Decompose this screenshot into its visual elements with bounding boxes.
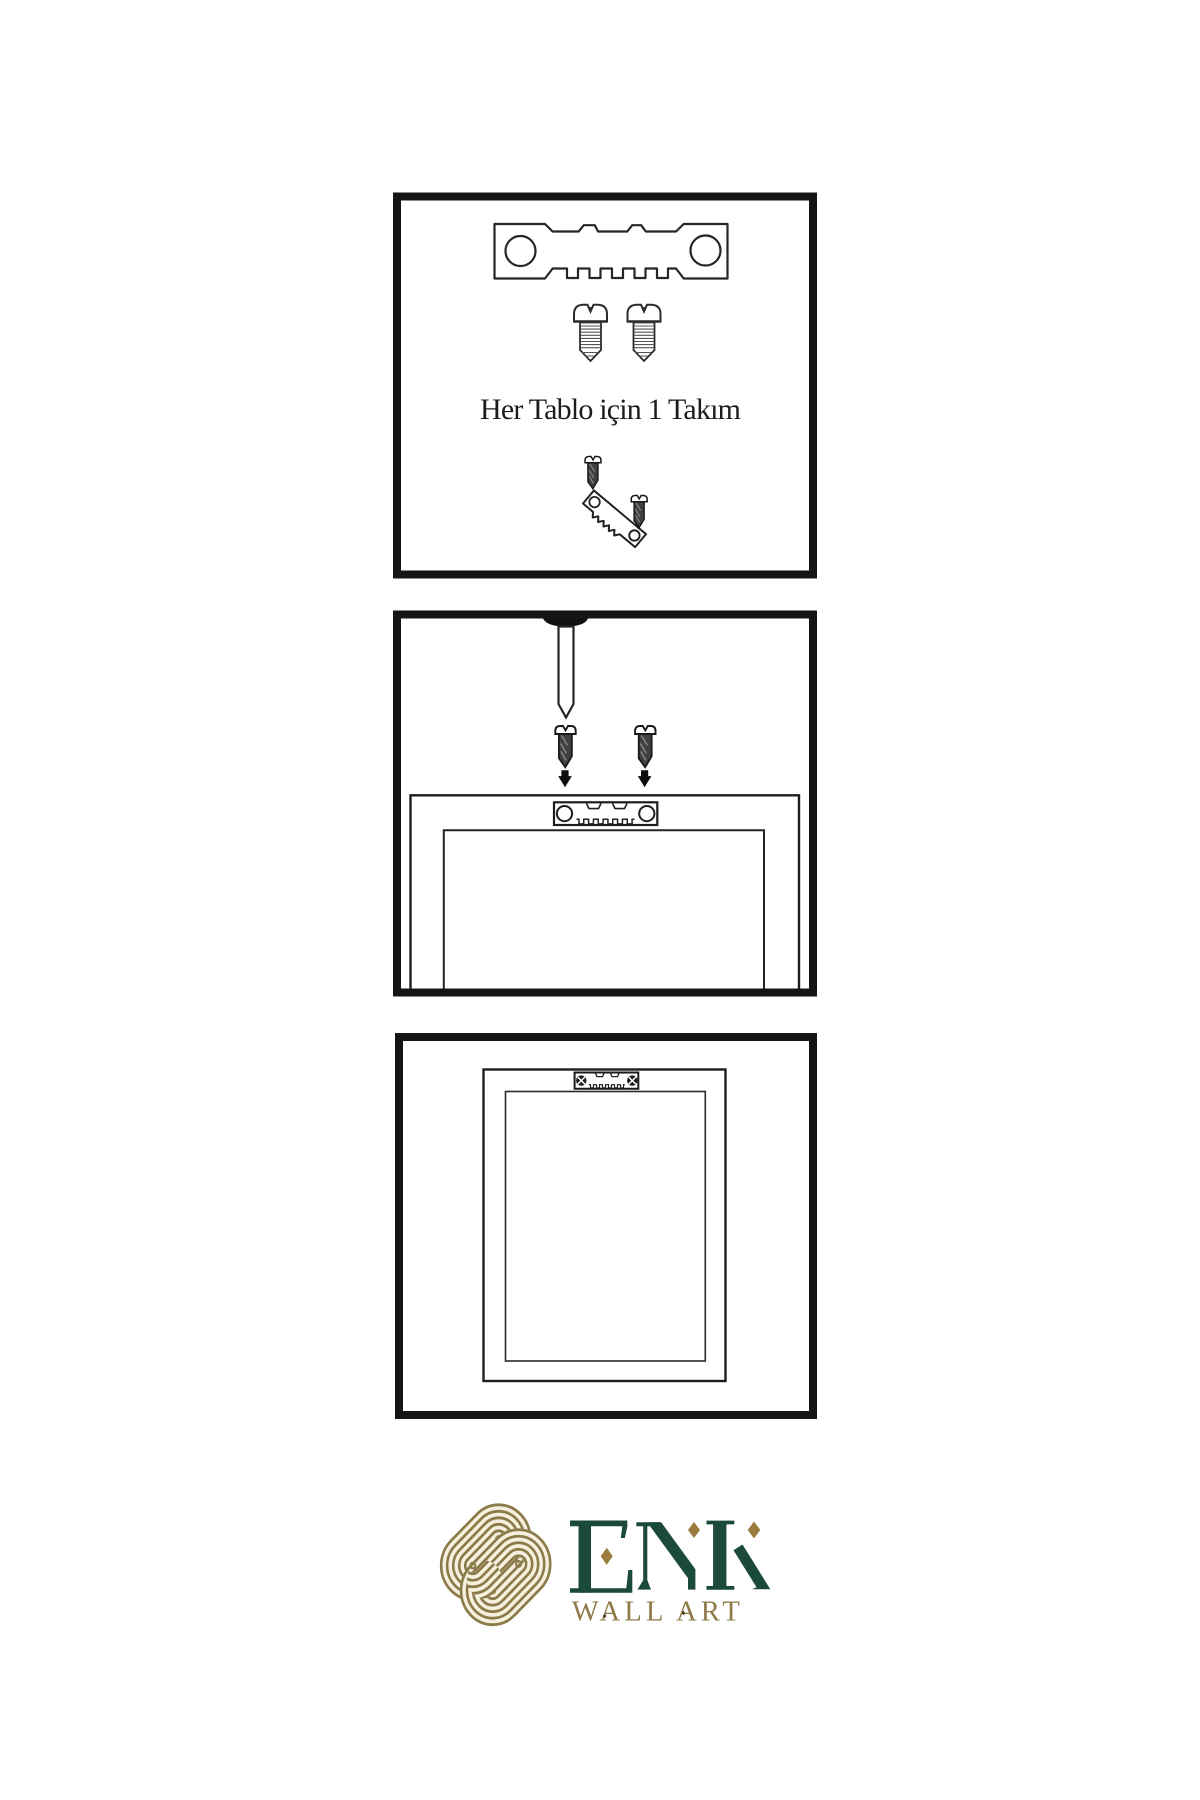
svg-text:Her Tablo için 1 Takım: Her Tablo için 1 Takım bbox=[480, 393, 741, 426]
svg-text:WALL ART: WALL ART bbox=[572, 1597, 740, 1628]
